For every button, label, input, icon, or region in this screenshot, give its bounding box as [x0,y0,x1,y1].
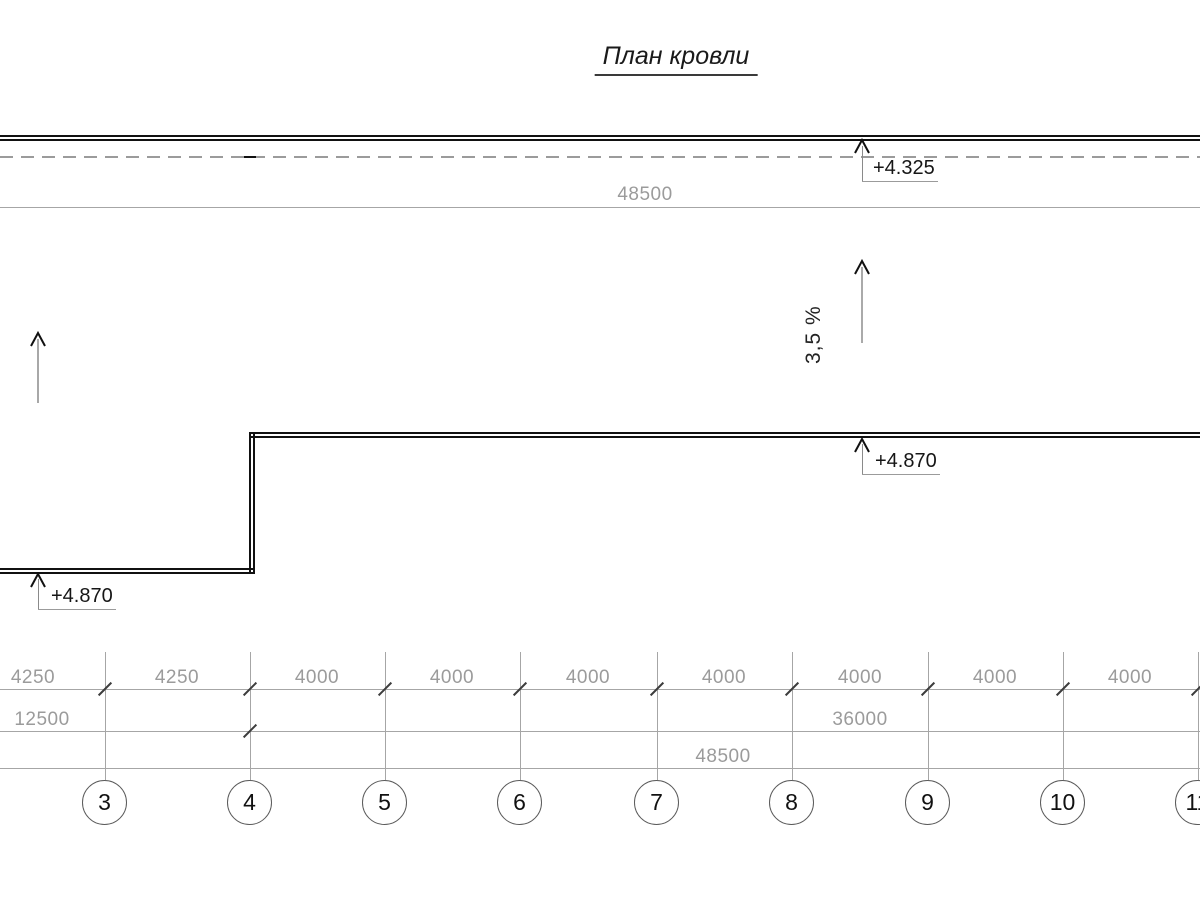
axis-number: 10 [1050,789,1076,816]
grid-line-10 [1063,652,1064,780]
grid-line-9 [928,652,929,780]
axis-bubble-5: 5 [362,780,407,825]
elevation-underline [38,609,116,610]
dim-value: 48500 [695,746,750,768]
elevation-value: +4.870 [51,585,113,608]
top-dim-value: 48500 [617,184,672,206]
slope-arrow-right-icon [852,259,872,345]
slope-arrow-left-icon [28,331,48,405]
grid-line-7 [657,652,658,780]
ridge-dashed-line [0,156,1200,158]
grid-line-5 [385,652,386,780]
grid-line-11 [1198,652,1199,780]
top-dim-line [0,207,1200,208]
axis-number: 8 [785,789,798,816]
axis-bubble-9: 9 [905,780,950,825]
axis-bubble-6: 6 [497,780,542,825]
elevation-value: +4.325 [873,157,935,180]
axis-bubble-10: 10 [1040,780,1085,825]
dim-line-3 [0,768,1200,769]
drawing-title: План кровли [595,42,758,76]
axis-bubble-8: 8 [769,780,814,825]
elevation-value: +4.870 [875,450,937,473]
slope-label-left: 3.5 % [0,367,4,426]
dim-value: 4000 [1108,667,1152,689]
dim-value: 4000 [295,667,339,689]
axis-number: 7 [650,789,663,816]
dim-value: 12500 [14,709,69,731]
elevation-leader [862,146,863,182]
dim-value: 4250 [155,667,199,689]
axis-number: 9 [921,789,934,816]
axis-bubble-4: 4 [227,780,272,825]
roof-edge-upper [249,432,1200,438]
dim-value: 4000 [702,667,746,689]
dim-value: 4250 [11,667,55,689]
top-edge-line-inner [0,139,1200,141]
top-edge-line-outer [0,135,1200,137]
elevation-underline [862,181,938,182]
axis-number: 4 [243,789,256,816]
elevation-leader [862,444,863,475]
slope-label-right: 3,5 % [802,305,826,364]
roof-plan-sheet: План кровли +4.325 48500 3.5 % 3,5 % +4.… [0,0,1200,900]
dim-value: 4000 [973,667,1017,689]
ridge-tick [244,156,256,158]
axis-number: 5 [378,789,391,816]
dim-value: 4000 [430,667,474,689]
axis-number: 6 [513,789,526,816]
dim-value: 4000 [566,667,610,689]
axis-bubble-3: 3 [82,780,127,825]
dim-line-2 [0,731,1200,732]
dim-value: 4000 [838,667,882,689]
elevation-underline [862,474,940,475]
axis-number: 3 [98,789,111,816]
axis-bubble-7: 7 [634,780,679,825]
elevation-leader [38,579,39,610]
grid-line-3 [105,652,106,780]
dim-line-1 [0,689,1200,690]
axis-bubble-11: 11 [1175,780,1200,825]
grid-line-8 [792,652,793,780]
roof-edge-step [249,432,255,574]
grid-line-6 [520,652,521,780]
dim-value: 36000 [832,709,887,731]
grid-line-4 [250,652,251,780]
axis-number: 11 [1186,789,1200,816]
